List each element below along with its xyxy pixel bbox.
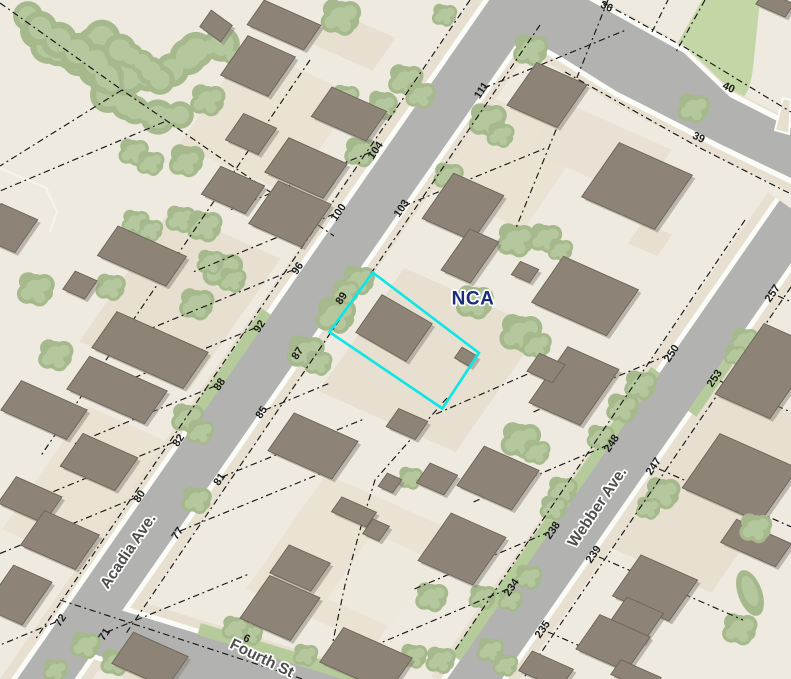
svg-text:NCA: NCA (452, 289, 495, 310)
